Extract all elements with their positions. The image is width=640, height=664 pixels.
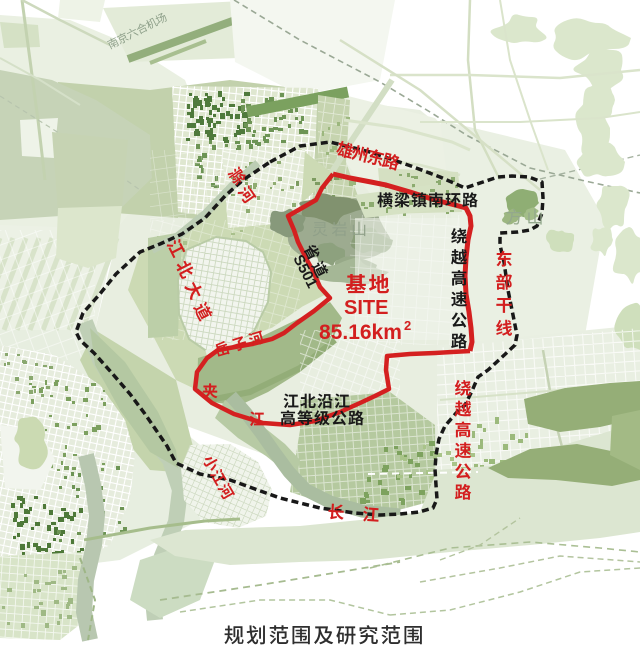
svg-text:85.16km: 85.16km xyxy=(319,321,402,344)
svg-text:2: 2 xyxy=(404,318,411,333)
svg-text:SITE: SITE xyxy=(344,297,388,319)
